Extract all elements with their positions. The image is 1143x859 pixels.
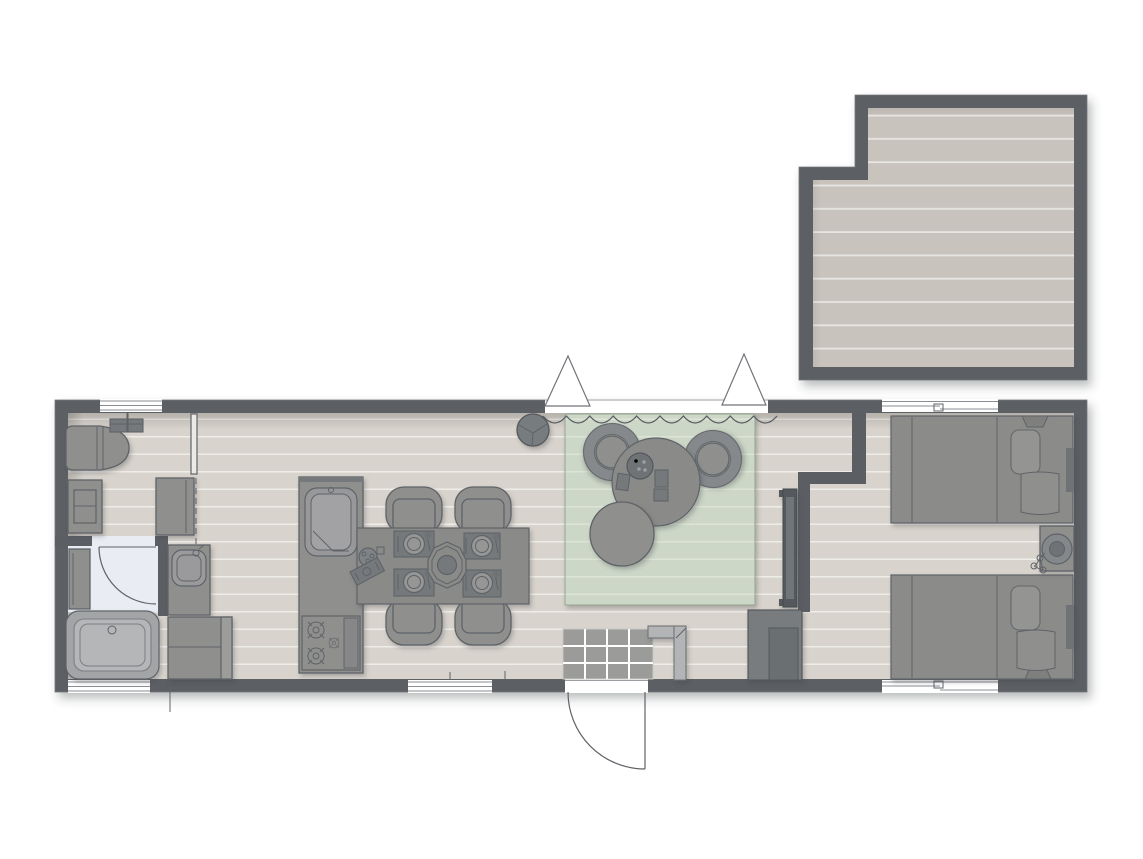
folded-blanket [1017, 630, 1055, 671]
thin-partition-wall [191, 414, 197, 474]
deck-floor [813, 108, 1074, 367]
deck [799, 95, 1089, 385]
vanity-basin [168, 545, 210, 615]
appliance-cabinet [168, 617, 232, 679]
partition-wall-step [798, 472, 866, 484]
entry-door-swing [568, 692, 645, 769]
entry-door-opening [565, 679, 648, 693]
pouf [590, 502, 654, 566]
dresser [68, 480, 102, 533]
window-bedroom-bottom [882, 680, 998, 693]
dining-chair [455, 487, 511, 533]
bathtub [66, 611, 159, 679]
bed-top [891, 416, 1074, 523]
tall-cabinet [156, 478, 194, 535]
headboard-shelf [1066, 448, 1074, 492]
bathroom-door-gap-floor [92, 536, 155, 546]
wardrobe [748, 610, 802, 680]
kitchen-sink [305, 488, 357, 557]
bathroom-shelf [69, 549, 90, 609]
headboard-shelf [1066, 605, 1074, 649]
partition-wall-top [852, 413, 866, 479]
floor-plan-drawing [0, 0, 1143, 859]
pillow [1011, 430, 1040, 474]
partition-wall-lower [798, 484, 810, 612]
bathroom-wall-vertical [158, 536, 168, 616]
main-building [55, 354, 1087, 769]
folded-blanket [1021, 472, 1059, 515]
bed-bottom [891, 575, 1074, 679]
window-bedroom-top [882, 399, 998, 412]
awning-triangle-left [545, 356, 590, 406]
dining-chair [386, 487, 442, 533]
floor-plan-canvas [0, 0, 1143, 859]
bathroom-wall-left [55, 536, 92, 546]
entry-tile-mat [563, 629, 653, 679]
lounge-chair [66, 426, 129, 470]
dining-chair [455, 599, 511, 645]
pendant-ball [517, 414, 549, 446]
stove [302, 616, 360, 670]
table-centerpiece [428, 542, 466, 588]
dining-chair [386, 599, 442, 645]
awning-triangle-right [722, 354, 766, 405]
nightstand [1040, 526, 1074, 571]
pillow [1011, 586, 1040, 630]
